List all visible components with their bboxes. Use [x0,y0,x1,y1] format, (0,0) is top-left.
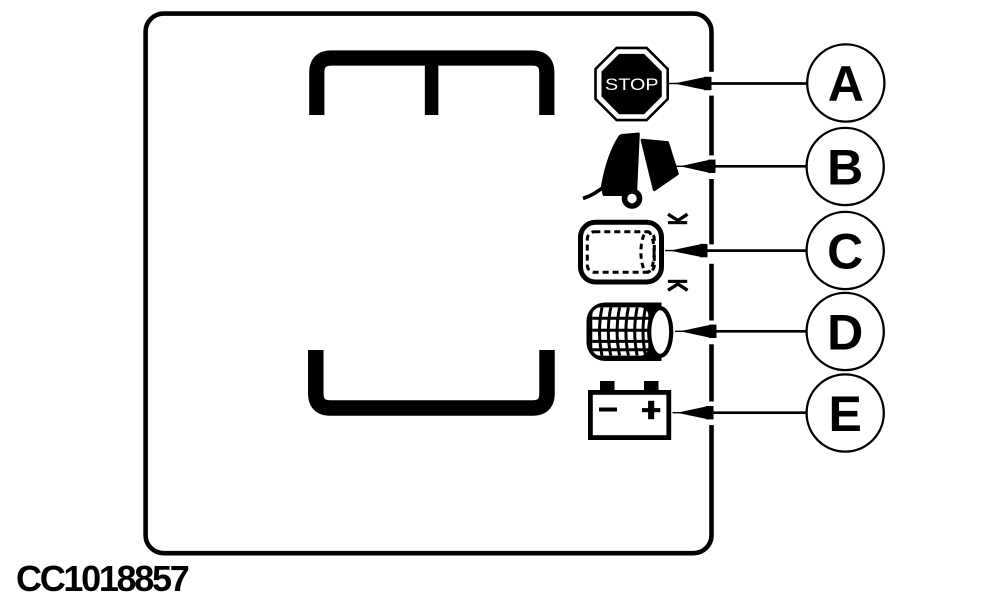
svg-text:C: C [827,224,863,280]
svg-text:A: A [828,56,864,112]
svg-text:STOP: STOP [605,75,659,94]
svg-text:B: B [827,140,863,196]
svg-text:D: D [827,305,863,361]
svg-text:E: E [829,386,862,442]
svg-text:CC1018857: CC1018857 [16,558,189,597]
